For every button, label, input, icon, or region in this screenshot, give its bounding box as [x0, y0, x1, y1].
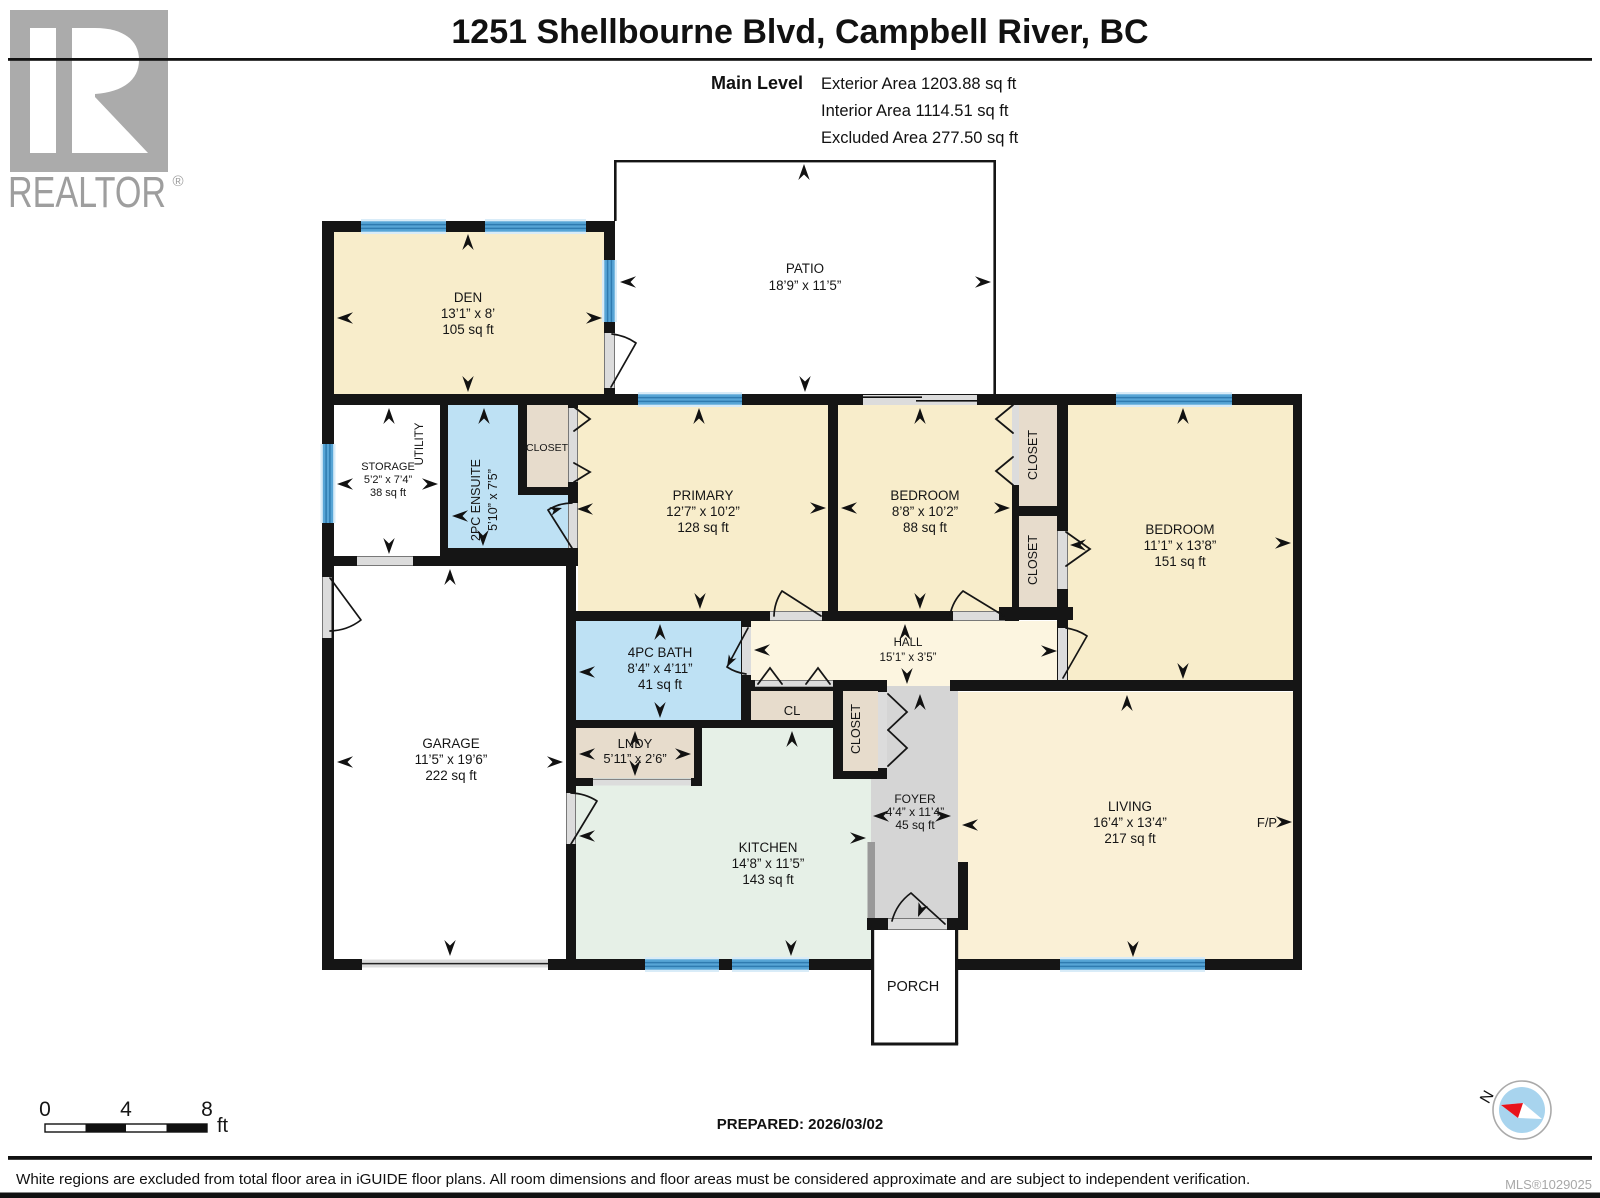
- svg-text:15’1” x 3’5”: 15’1” x 3’5”: [880, 652, 937, 664]
- svg-text:11’1” x 13’8”: 11’1” x 13’8”: [1144, 538, 1217, 553]
- svg-text:8’4” x 4’11”: 8’4” x 4’11”: [627, 661, 692, 676]
- svg-text:CLOSET: CLOSET: [849, 704, 863, 754]
- svg-text:128 sq ft: 128 sq ft: [677, 520, 729, 535]
- svg-text:FOYER: FOYER: [894, 792, 936, 806]
- svg-text:16’4” x 13’4”: 16’4” x 13’4”: [1093, 815, 1167, 830]
- svg-text:PATIO: PATIO: [786, 261, 824, 276]
- svg-text:0: 0: [39, 1098, 51, 1121]
- svg-text:CLOSET: CLOSET: [1026, 430, 1040, 480]
- svg-text:White regions are excluded fro: White regions are excluded from total fl…: [16, 1171, 1250, 1188]
- svg-text:Exterior Area 1203.88 sq ft: Exterior Area 1203.88 sq ft: [821, 75, 1017, 93]
- svg-text:4: 4: [120, 1098, 132, 1121]
- svg-text:8: 8: [201, 1098, 213, 1121]
- svg-text:4’4” x 11’4”: 4’4” x 11’4”: [886, 805, 944, 819]
- svg-text:143 sq ft: 143 sq ft: [742, 872, 794, 887]
- svg-text:12’7” x 10’2”: 12’7” x 10’2”: [666, 504, 740, 519]
- svg-text:88 sq ft: 88 sq ft: [903, 520, 947, 535]
- svg-text:GARAGE: GARAGE: [422, 736, 479, 751]
- svg-text:CLOSET: CLOSET: [526, 442, 569, 454]
- svg-text:CLOSET: CLOSET: [1026, 535, 1040, 585]
- svg-text:PREPARED: 2026/03/02: PREPARED: 2026/03/02: [717, 1116, 883, 1133]
- svg-text:5’2” x 7’4”: 5’2” x 7’4”: [364, 474, 413, 486]
- svg-text:MLS®1029025: MLS®1029025: [1505, 1177, 1592, 1192]
- svg-text:38 sq ft: 38 sq ft: [370, 487, 406, 499]
- svg-text:LIVING: LIVING: [1108, 799, 1152, 814]
- svg-text:5’11” x 2’6”: 5’11” x 2’6”: [603, 751, 666, 766]
- svg-text:41 sq ft: 41 sq ft: [638, 677, 682, 692]
- svg-text:KITCHEN: KITCHEN: [739, 840, 798, 855]
- svg-text:5’10” x 7’5”: 5’10” x 7’5”: [486, 469, 500, 531]
- svg-text:PRIMARY: PRIMARY: [673, 488, 734, 503]
- svg-text:13’1” x 8’: 13’1” x 8’: [441, 306, 495, 321]
- svg-text:151 sq ft: 151 sq ft: [1154, 554, 1206, 569]
- svg-text:8’8” x 10’2”: 8’8” x 10’2”: [892, 504, 958, 519]
- svg-text:4PC BATH: 4PC BATH: [628, 645, 693, 660]
- svg-text:Main Level: Main Level: [711, 73, 803, 93]
- svg-text:222 sq ft: 222 sq ft: [425, 768, 477, 783]
- svg-text:11’5” x 19’6”: 11’5” x 19’6”: [415, 752, 488, 767]
- svg-text:105 sq ft: 105 sq ft: [442, 322, 494, 337]
- svg-text:CL: CL: [784, 703, 801, 718]
- svg-text:LNDY: LNDY: [618, 736, 653, 751]
- svg-text:1251 Shellbourne Blvd, Campbel: 1251 Shellbourne Blvd, Campbell River, B…: [451, 13, 1148, 51]
- svg-text:UTILITY: UTILITY: [414, 422, 426, 465]
- svg-text:18’9” x 11’5”: 18’9” x 11’5”: [769, 278, 842, 293]
- svg-text:ft: ft: [217, 1115, 229, 1137]
- svg-text:BEDROOM: BEDROOM: [1145, 522, 1214, 537]
- svg-text:REALTOR: REALTOR: [8, 168, 166, 217]
- svg-text:Interior Area 1114.51 sq ft: Interior Area 1114.51 sq ft: [821, 102, 1009, 120]
- svg-text:45 sq ft: 45 sq ft: [895, 818, 935, 832]
- svg-text:STORAGE: STORAGE: [361, 461, 415, 473]
- svg-text:217 sq ft: 217 sq ft: [1104, 831, 1156, 846]
- svg-text:BEDROOM: BEDROOM: [890, 488, 959, 503]
- svg-text:14’8” x 11’5”: 14’8” x 11’5”: [732, 856, 805, 871]
- svg-text:Excluded Area 277.50 sq ft: Excluded Area 277.50 sq ft: [821, 129, 1019, 147]
- svg-text:®: ®: [172, 173, 183, 190]
- svg-text:F/P: F/P: [1257, 815, 1277, 830]
- svg-text:DEN: DEN: [454, 290, 482, 305]
- svg-text:HALL: HALL: [894, 637, 923, 649]
- svg-text:2PC ENSUITE: 2PC ENSUITE: [469, 459, 483, 541]
- svg-text:PORCH: PORCH: [887, 979, 939, 995]
